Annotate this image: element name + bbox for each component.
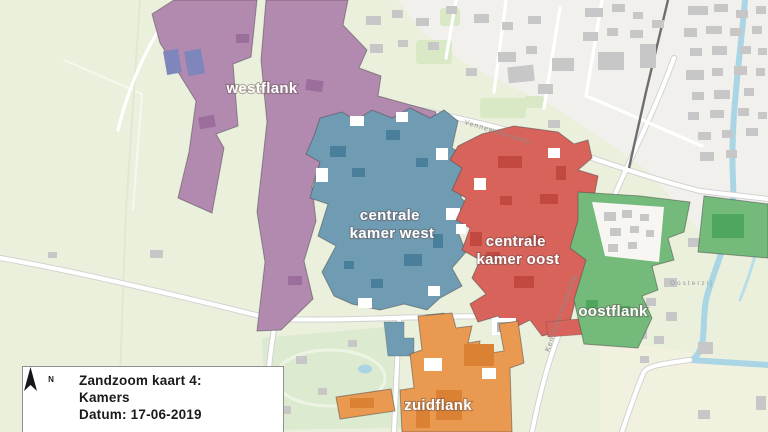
building <box>698 132 711 140</box>
map-canvas: Vennewatersweg Kennemerstraatweg Oosterz… <box>0 0 768 432</box>
building <box>392 10 403 18</box>
zone-label-line: centrale <box>360 207 420 224</box>
zone-label-zuidflank: zuidflank <box>404 397 472 414</box>
building <box>498 52 516 62</box>
building <box>712 46 727 55</box>
building <box>758 48 767 55</box>
building <box>652 20 664 28</box>
building <box>507 65 535 84</box>
building <box>756 396 766 410</box>
building <box>548 120 560 128</box>
building <box>370 44 383 53</box>
building <box>726 150 737 158</box>
legend-title-line1: Zandzoom kaart 4: <box>79 372 202 389</box>
building <box>398 40 408 47</box>
building <box>756 68 765 76</box>
building <box>758 112 767 119</box>
building <box>666 312 677 321</box>
pond <box>358 365 372 374</box>
building <box>738 108 749 116</box>
building <box>296 356 307 364</box>
building <box>684 28 697 37</box>
legend-title-line2: Kamers <box>79 389 202 406</box>
building <box>756 6 766 14</box>
building <box>318 388 327 395</box>
building <box>630 30 643 38</box>
building <box>698 342 713 354</box>
building <box>734 66 747 75</box>
building <box>150 250 163 258</box>
building <box>583 32 598 41</box>
building <box>730 28 742 36</box>
building <box>722 130 733 138</box>
north-arrow-icon <box>23 367 38 392</box>
building <box>688 112 699 120</box>
building <box>446 6 457 14</box>
building <box>538 84 553 94</box>
building <box>692 92 704 100</box>
building <box>698 410 710 419</box>
building <box>466 68 477 76</box>
legend-date: Datum: 17-06-2019 <box>79 406 202 423</box>
legend-box: N Zandzoom kaart 4: Kamers Datum: 17-06-… <box>22 366 284 432</box>
building <box>502 22 513 30</box>
building <box>526 46 537 54</box>
zone-label-line: kamer west <box>350 225 435 242</box>
building <box>366 16 381 25</box>
building <box>654 336 664 344</box>
building <box>585 8 603 17</box>
building <box>752 26 762 34</box>
building <box>706 26 722 34</box>
building <box>428 42 439 50</box>
building <box>474 14 489 23</box>
zone-label-oostflank: oostflank <box>578 303 648 320</box>
street-label-oosterzij: Oosterzij <box>670 280 714 287</box>
building <box>598 52 624 70</box>
building <box>640 44 656 68</box>
building <box>710 110 724 118</box>
building <box>712 68 723 76</box>
building <box>688 6 708 15</box>
building <box>607 28 618 36</box>
building <box>690 48 702 56</box>
zone-label-line: centrale <box>486 233 546 250</box>
building <box>746 128 758 136</box>
zone-label-centrale-kamer-west: centrale kamer west <box>350 207 435 242</box>
building <box>48 252 57 258</box>
building <box>552 58 574 71</box>
building <box>736 10 748 18</box>
building <box>640 356 649 363</box>
zone-label-line: kamer oost <box>476 251 559 268</box>
north-label: N <box>48 375 54 384</box>
building <box>740 46 751 54</box>
zone-label-centrale-kamer-oost: centrale kamer oost <box>476 233 559 268</box>
north-indicator: N <box>23 372 79 384</box>
building <box>700 152 714 161</box>
building <box>714 90 730 99</box>
legend-text: Zandzoom kaart 4: Kamers Datum: 17-06-20… <box>79 372 202 423</box>
building <box>686 70 704 80</box>
building <box>612 4 625 12</box>
building <box>528 16 541 24</box>
building <box>348 340 357 347</box>
building <box>744 88 754 96</box>
building <box>416 18 429 26</box>
building <box>633 12 643 19</box>
zone-label-westflank: westflank <box>225 80 297 97</box>
building <box>714 4 728 12</box>
